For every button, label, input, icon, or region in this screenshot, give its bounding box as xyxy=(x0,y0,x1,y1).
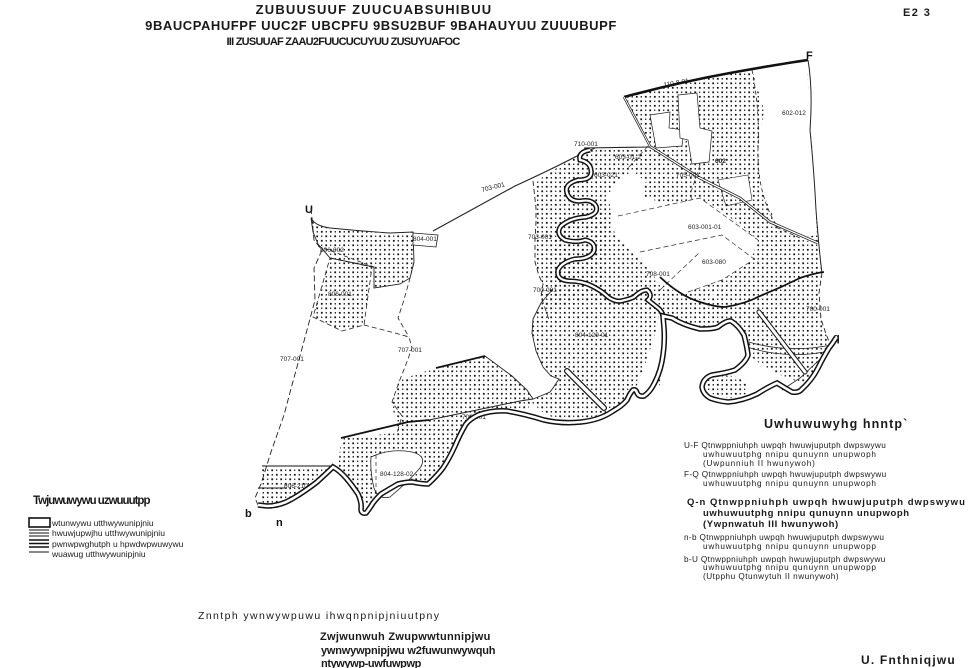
svg-text:603-080: 603-080 xyxy=(702,259,726,266)
svg-text:710-001: 710-001 xyxy=(574,141,598,148)
svg-text:Twjuwuwywu uzwuuutpp: Twjuwuwywu uzwuuutpp xyxy=(33,495,150,507)
svg-text:F: F xyxy=(806,50,813,62)
svg-text:(Ywpnwatuh III hwunywoh): (Ywpnwatuh III hwunywoh) xyxy=(703,519,839,530)
svg-text:705-001: 705-001 xyxy=(676,172,700,179)
svg-text:wtunwywu utthwywunipjniu: wtunwywu utthwywunipjniu xyxy=(51,518,154,528)
svg-text:708-001: 708-001 xyxy=(646,271,670,278)
svg-text:806-002: 806-002 xyxy=(320,247,344,254)
svg-text:9BAUCPAHUFPF UUC2F UBCPFU 9BSU: 9BAUCPAHUFPF UUC2F UBCPFU 9BSU2BUF 9BAHA… xyxy=(145,18,617,33)
svg-text:804-001: 804-001 xyxy=(413,236,437,243)
svg-text:Zwjwunwuh Zwupwwtunnipjwu: Zwjwunwuh Zwupwwtunnipjwu xyxy=(320,631,491,643)
svg-text:uwhuwuutphg nnipu qunuynn unup: uwhuwuutphg nnipu qunuynn unupwoph xyxy=(703,508,910,519)
svg-text:806-001: 806-001 xyxy=(328,291,352,298)
svg-text:E2 3: E2 3 xyxy=(903,7,931,19)
svg-text:Uwhuwuwyhg hnntp`: Uwhuwuwyhg hnntp` xyxy=(764,417,908,431)
svg-text:Znntph ywnwywpuwu ihwqnpnipjni: Znntph ywnwywpuwu ihwqnpnipjniuutpny xyxy=(198,610,440,622)
svg-text:U. Fnthniqjwu: U. Fnthniqjwu xyxy=(861,653,956,667)
svg-text:uwhuwuutphg nnipu qunuynn u: uwhuwuutphg nnipu qunuynn unupwopp xyxy=(703,563,877,572)
svg-text:ZUBUUSUUF ZUUCUABSUHIBUU: ZUBUUSUUF ZUUCUABSUHIBUU xyxy=(256,2,493,17)
svg-text:wuawug utthwywunipjniu: wuawug utthwywunipjniu xyxy=(51,549,146,559)
svg-text:603-021: 603-021 xyxy=(594,172,618,179)
svg-text:U-F Qtnwppniuhph uwpqh hwuwjup: U-F Qtnwppniuhph uwpqh hwuwjuputph dwpsw… xyxy=(684,441,886,450)
svg-text:b: b xyxy=(245,508,252,520)
svg-text:F-Q Qtnwppniuhph uwpqh hwuwjup: F-Q Qtnwppniuhph uwpqh hwuwjuputph dwpsw… xyxy=(684,470,887,479)
svg-text:603-01-2: 603-01-2 xyxy=(615,154,641,161)
svg-text:602: 602 xyxy=(715,158,726,165)
svg-text:602-012: 602-012 xyxy=(782,110,806,117)
svg-text:707-001: 707-001 xyxy=(398,347,422,354)
svg-text:707-001: 707-001 xyxy=(280,356,304,363)
svg-text:804-129-01: 804-129-01 xyxy=(575,332,609,339)
svg-text:n: n xyxy=(276,517,283,529)
svg-text:n-b Qtnwppniuhph uwpqh hwuwjup: n-b Qtnwppniuhph uwpqh hwuwjuputph dwpsw… xyxy=(684,533,884,542)
svg-text:III ZUSUUAF ZAAU2FUUCUCUYUU ZU: III ZUSUUAF ZAAU2FUUCUCUYUU ZUSUYUAFOC xyxy=(226,36,460,48)
svg-text:(Uwpunniuh II hwunywoh): (Uwpunniuh II hwunywoh) xyxy=(703,459,816,468)
svg-text:uwhuwuutphg nnipu qunuynn unup: uwhuwuutphg nnipu qunuynn unupwoph xyxy=(703,479,877,488)
svg-text:603-001-01: 603-001-01 xyxy=(688,224,722,231)
svg-text:U: U xyxy=(305,204,313,216)
svg-text:Q-n Qtnwppniuhph uwpqh hwuwjup: Q-n Qtnwppniuhph uwpqh hwuwjuputph dwpsw… xyxy=(687,497,966,508)
svg-text:703-001: 703-001 xyxy=(528,234,552,241)
svg-text:uwhuwuutphg nnipu qunuynn unup: uwhuwuutphg nnipu qunuynn unupwoph xyxy=(703,450,877,459)
svg-text:hwuwjupwjhu utthwywunipjniu: hwuwjupwjhu utthwywunipjniu xyxy=(52,528,165,538)
svg-text:uwhuwuutphg nnipu qunuynn unup: uwhuwuutphg nnipu qunuynn unupwopp xyxy=(703,542,877,551)
svg-text:ntywywp-uwfuwpwp: ntywywp-uwfuwpwp xyxy=(321,658,422,668)
svg-text:pwnwpwghutph u hpwdwpwuwywu: pwnwpwghutph u hpwdwpwuwywu xyxy=(52,539,184,549)
svg-text:700-001: 700-001 xyxy=(806,306,830,313)
svg-text:(Utpphu Qtunwytuh II nwunywoh): (Utpphu Qtunwytuh II nwunywoh) xyxy=(703,572,839,581)
svg-text:ywnwywpnipjwu w2fuwunwywquh: ywnwywpnipjwu w2fuwunwywquh xyxy=(321,645,496,657)
svg-text:804-128-02: 804-128-02 xyxy=(380,471,414,478)
